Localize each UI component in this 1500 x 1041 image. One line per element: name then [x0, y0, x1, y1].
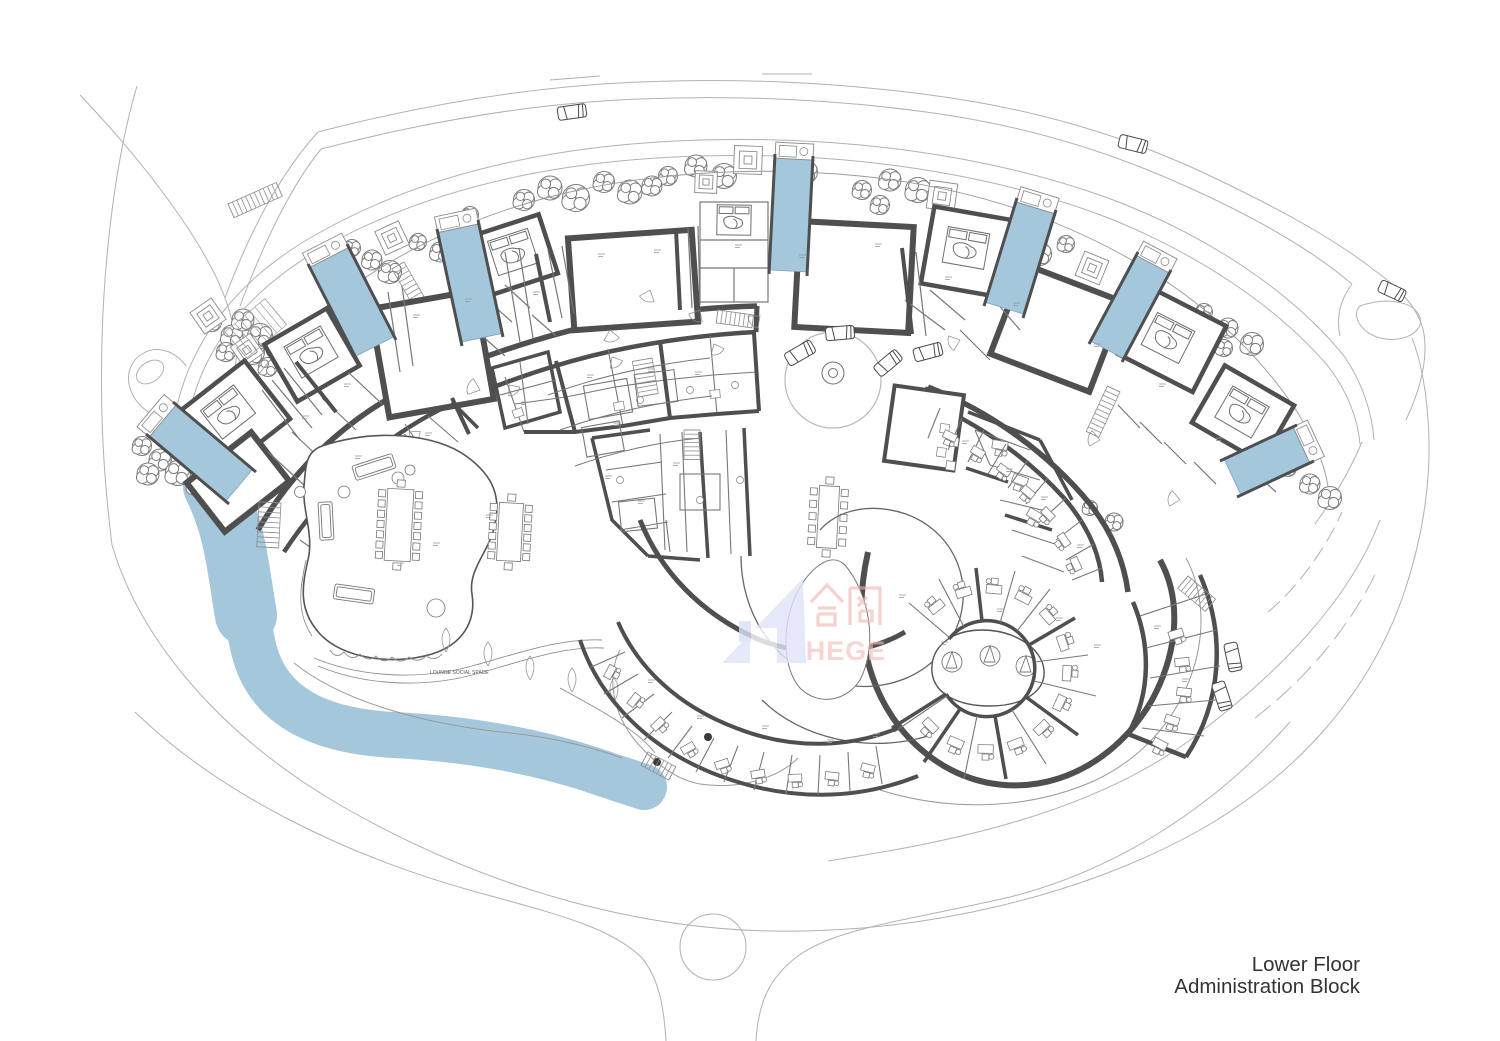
svg-text:Lower Floor: Lower Floor: [1252, 953, 1360, 976]
svg-text:LOUNGE SOCIAL SPACE: LOUNGE SOCIAL SPACE: [430, 670, 489, 676]
svg-text:Administration Block: Administration Block: [1174, 975, 1360, 998]
svg-text:HEGE: HEGE: [806, 636, 887, 666]
